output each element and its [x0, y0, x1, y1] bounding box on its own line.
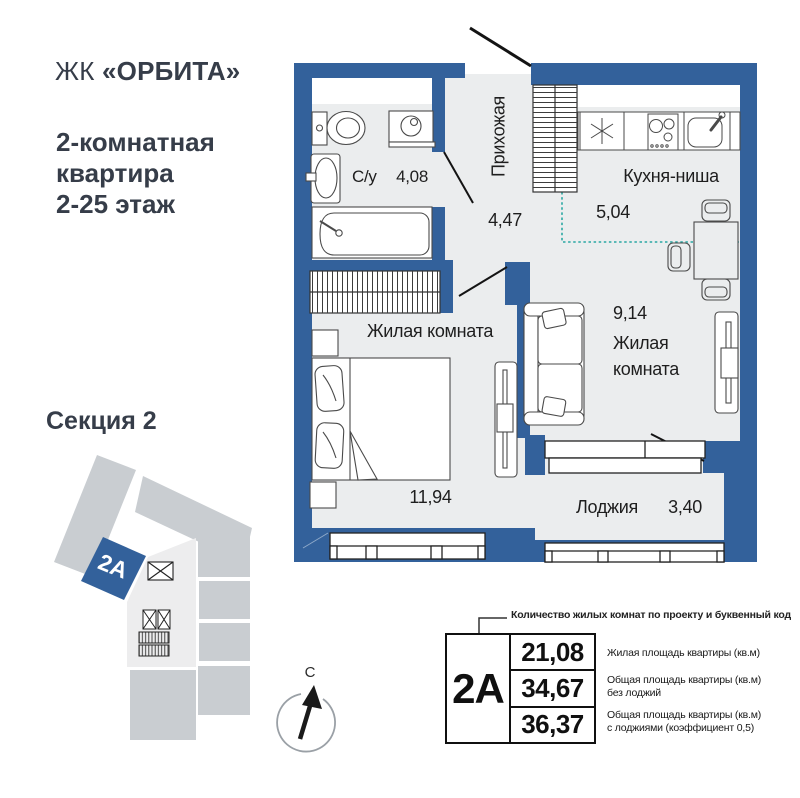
total-area-value: 34,67 — [511, 671, 594, 707]
living1-wardrobe-icon — [310, 271, 440, 313]
living1-window — [330, 533, 485, 559]
apartment-plan — [294, 28, 757, 562]
hallway-area: 4,47 — [480, 209, 530, 231]
hallway-wardrobe-icon — [533, 85, 577, 192]
living-area-value: 21,08 — [511, 635, 594, 671]
stove-icon — [648, 114, 678, 150]
bathtub-icon — [312, 207, 432, 258]
building-unit — [199, 581, 250, 619]
bathroom-name: С/у — [352, 167, 377, 187]
loggia-window-unit — [545, 441, 705, 473]
nightstand-icon — [310, 482, 336, 508]
building-unit — [199, 623, 250, 661]
total-area-description: Общая площадь квартиры (кв.м) без лоджий — [607, 674, 782, 699]
living1-area: 11,94 — [398, 486, 463, 508]
nightstand-icon — [312, 330, 338, 356]
living2-area: 9,14 — [613, 302, 647, 324]
unit-code-cell: 2A — [447, 635, 511, 742]
entrance-door — [470, 28, 531, 66]
kitchen-counter-band — [578, 85, 740, 107]
compass-arrowhead — [302, 685, 322, 709]
living2-name: Жилая комната — [613, 330, 679, 382]
washing-machine-icon — [389, 111, 435, 147]
sofa-icon — [524, 303, 584, 425]
info-table: 2A 21,08 34,67 36,37 — [445, 633, 596, 744]
compass-needle — [300, 706, 310, 739]
section-title: Секция 2 — [46, 407, 157, 436]
toilet-icon — [312, 112, 365, 146]
table-icon — [694, 222, 738, 279]
bathroom-area: 4,08 — [396, 167, 428, 187]
total-area-with-loggia-description: Общая площадь квартиры (кв.м) с лоджиями… — [607, 709, 782, 734]
kitchen-area: 5,04 — [588, 201, 638, 223]
complex-title: ЖК «ОРБИТА» — [55, 56, 240, 87]
complex-title-prefix: ЖК — [55, 56, 102, 86]
kitchen-sink-icon — [684, 112, 730, 150]
loggia-window — [545, 543, 724, 562]
complex-title-name: «ОРБИТА» — [102, 56, 240, 86]
living1-name: Жилая комната — [355, 320, 505, 342]
compass — [277, 685, 335, 752]
building-unit — [198, 666, 250, 715]
living1-tv-cabinet-icon — [495, 362, 517, 477]
compass-north-label: С — [300, 664, 320, 681]
section-map — [54, 455, 252, 740]
fridge-icon — [580, 112, 624, 150]
floorplan-page: ЖК «ОРБИТА» 2-комнатная квартира 2-25 эт… — [0, 0, 800, 798]
apartment-subtitle: 2-комнатная квартира 2-25 этаж — [56, 127, 215, 220]
living2-tv-cabinet-icon — [715, 312, 738, 413]
bathroom-duct — [312, 78, 432, 104]
kitchen-name: Кухня-ниша — [596, 165, 746, 187]
callout-connector — [479, 618, 507, 633]
bathroom-label: С/у 4,08 — [352, 167, 428, 187]
hallway-name: Прихожая — [489, 89, 510, 185]
shaft-icon — [143, 610, 170, 629]
sink-icon — [306, 154, 340, 203]
callout-label: Количество жилых комнат по проекту и бук… — [511, 609, 771, 621]
loggia-name: Лоджия — [576, 497, 638, 518]
elevator-icon — [148, 562, 173, 580]
loggia-label: Лоджия 3,40 — [576, 497, 702, 518]
area-values: 21,08 34,67 36,37 — [511, 635, 594, 742]
total-area-with-loggia-value: 36,37 — [511, 708, 594, 742]
living-area-description: Жилая площадь квартиры (кв.м) — [607, 647, 782, 660]
loggia-area: 3,40 — [668, 497, 702, 518]
building-unit — [130, 670, 196, 740]
